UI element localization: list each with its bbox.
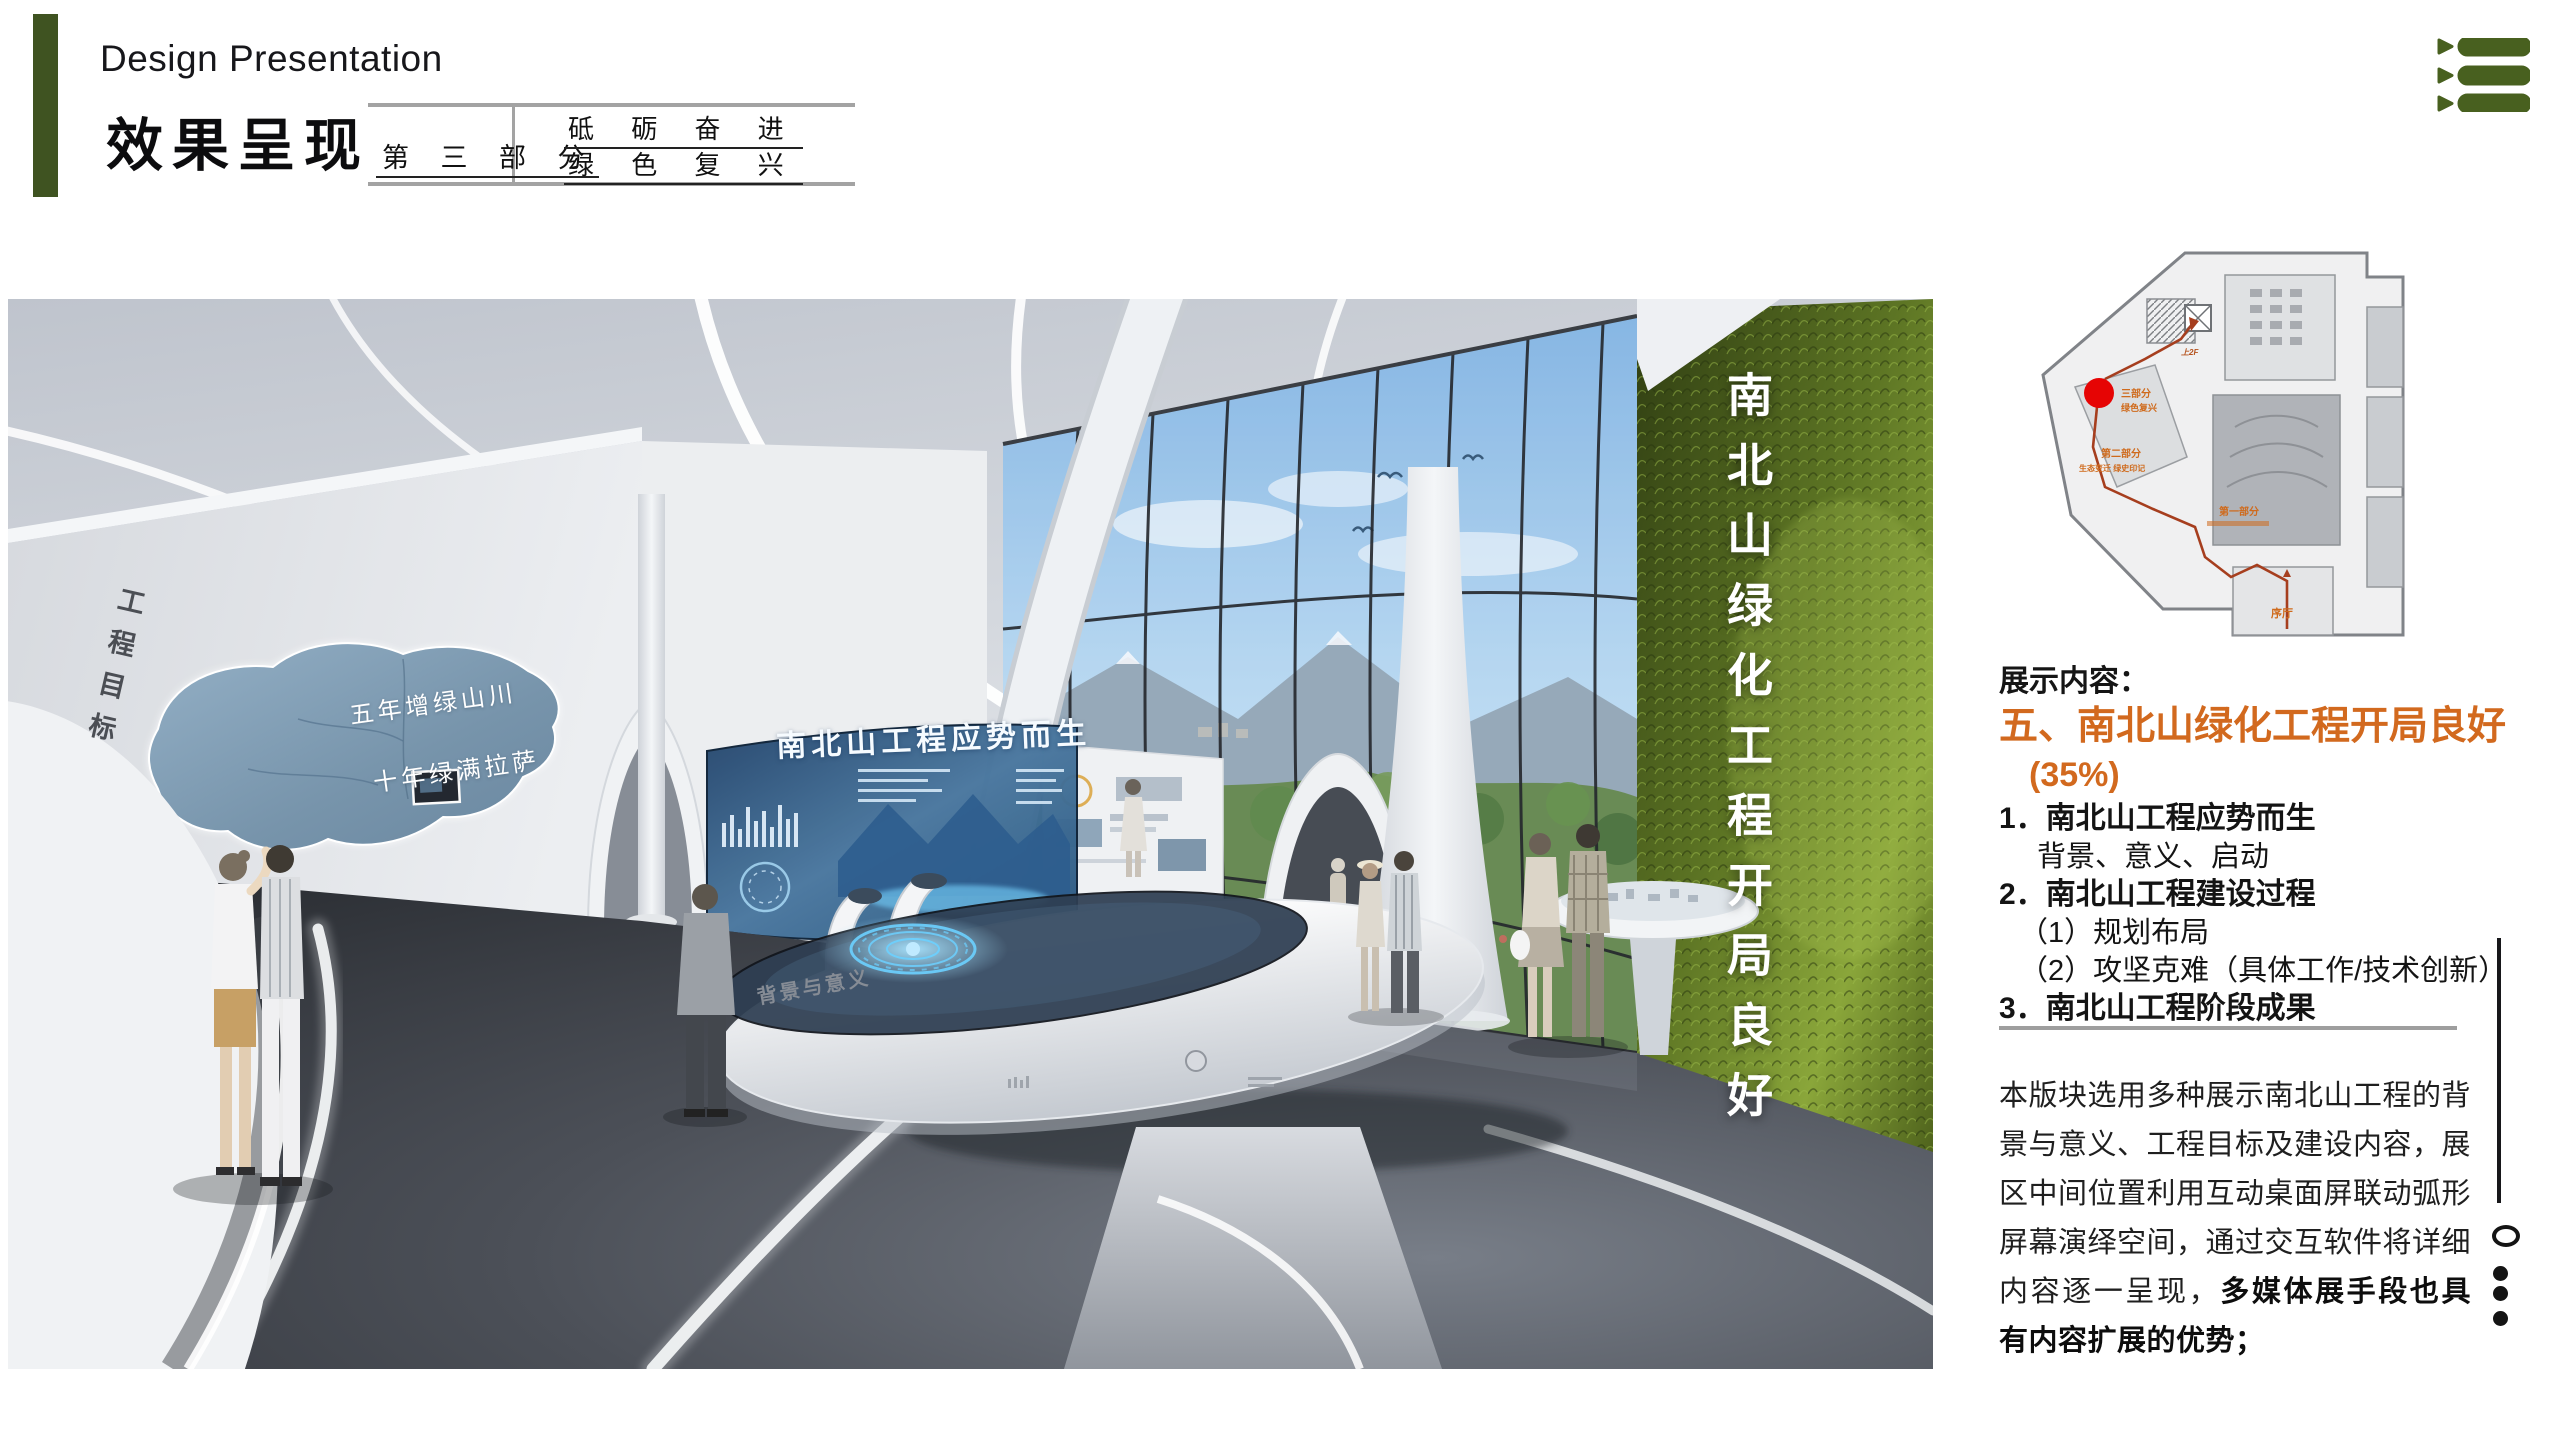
part-box: 第 三 部 分 砥 砺 奋 进 绿 色 复 兴 (368, 103, 855, 186)
list-menu-icon[interactable] (2437, 38, 2530, 112)
page-title-zh: 效果呈现 (106, 100, 370, 182)
list-item-2a: （1）规划布局 (1999, 914, 2499, 952)
green-wall-title: 南北山绿化工程开局良好 (1714, 371, 1780, 1171)
label-part2-line2: 生态变迁 绿史印记 (2079, 463, 2145, 473)
part-motto-line2: 绿 色 复 兴 (564, 145, 803, 185)
list-item-2: 2．南北山工程建设过程 (1999, 876, 2499, 914)
content-panel: 展示内容： 五、南北山绿化工程开局良好 (35%) 1．南北山工程应势而生 背景… (1999, 664, 2499, 1028)
part-motto-line1: 砥 砺 奋 进 (564, 109, 803, 149)
section-heading: 五、南北山绿化工程开局良好 (1999, 702, 2499, 752)
section-label: 展示内容： (1999, 664, 2499, 700)
paragraph-normal: 本版块选用多种展示南北山工程的背景与意义、工程目标及建设内容，展区中间位置利用互… (1999, 1080, 2471, 1308)
floorplan-map: 三部分 绿色复兴 第二部分 生态变迁 绿史印记 第一部分 序厅 上2F (2035, 247, 2430, 647)
wall-slogan: 五年增绿山川 十年绿满拉萨 (343, 639, 548, 838)
list-item-1a: 背景、意义、启动 (1999, 838, 2499, 876)
presentation-slide: Design Presentation 效果呈现 第 三 部 分 砥 砺 奋 进… (0, 0, 2560, 1440)
page-indicator-dot-2[interactable] (2493, 1286, 2508, 1301)
column-thin (638, 494, 665, 921)
label-part3-line2: 绿色复兴 (2121, 402, 2157, 413)
label-lobby: 序厅 (2271, 606, 2293, 620)
label-part2-line1: 第二部分 (2101, 447, 2141, 460)
page-indicator-current[interactable] (2492, 1225, 2520, 1247)
outline-list: 1．南北山工程应势而生 背景、意义、启动 2．南北山工程建设过程 （1）规划布局… (1999, 800, 2499, 1028)
wall-slogan-line1: 五年增绿山川 (348, 674, 533, 734)
description-paragraph: 本版块选用多种展示南北山工程的背景与意义、工程目标及建设内容，展区中间位置利用互… (1999, 1072, 2471, 1366)
list-item-2b: （2）攻坚克难（具体工作/技术创新） (1999, 952, 2499, 990)
right-rule (2497, 938, 2501, 1203)
exhibition-render-image: 工程目标 五年增绿山川 十年绿满拉萨 南北山工程应势而生 背景与意义 南北山绿化… (8, 299, 1933, 1369)
page-indicator-dot-1[interactable] (2493, 1266, 2508, 1281)
green-plant-wall (1637, 299, 1933, 1159)
panel-separator (1999, 1026, 2457, 1030)
label-stairs: 上2F (2181, 348, 2199, 357)
list-item-3: 3．南北山工程阶段成果 (1999, 990, 2499, 1028)
accent-bar (33, 14, 58, 197)
location-marker (2084, 378, 2114, 408)
render-scene (8, 299, 1933, 1369)
label-part3-line1: 三部分 (2121, 387, 2151, 400)
page-indicator-dot-3[interactable] (2493, 1311, 2508, 1326)
section-percent: (35%) (1999, 752, 2499, 798)
label-part1-line1: 第一部分 (2219, 505, 2259, 518)
page-title-en: Design Presentation (100, 38, 443, 80)
list-item-1: 1．南北山工程应势而生 (1999, 800, 2499, 838)
wall-slogan-line2: 十年绿满拉萨 (357, 743, 542, 803)
